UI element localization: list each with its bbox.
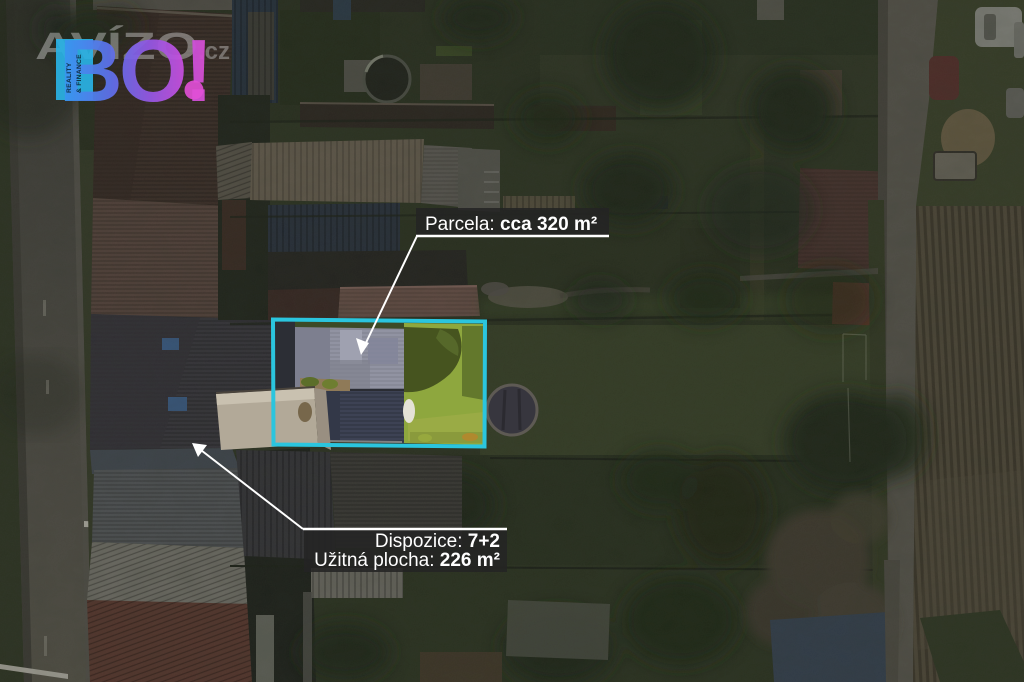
svg-text:REALITY: REALITY bbox=[66, 62, 73, 93]
svg-text:& FINANCE: & FINANCE bbox=[76, 54, 83, 93]
svg-text:Parcela: cca 320 m²: Parcela: cca 320 m² bbox=[425, 214, 597, 235]
svg-text:Dispozice: 7+2: Dispozice: 7+2 bbox=[375, 531, 500, 552]
svg-text:Užitná plocha: 226 m²: Užitná plocha: 226 m² bbox=[314, 550, 500, 571]
